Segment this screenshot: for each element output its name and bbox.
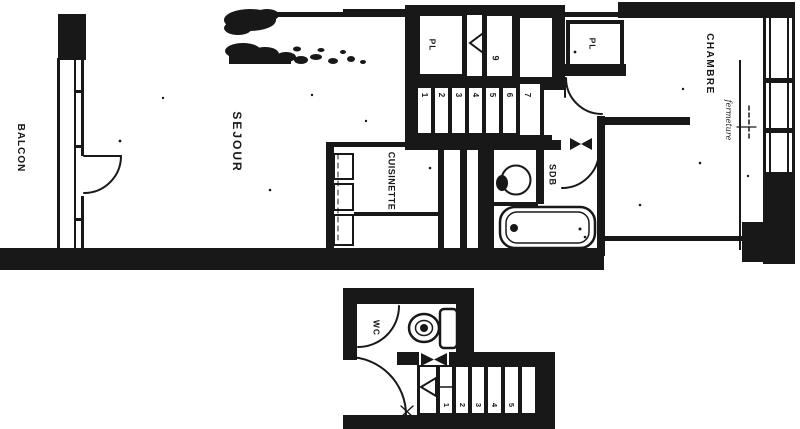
entry-door-arc [348,357,413,417]
stair-number-9: 9 [491,55,500,60]
room-label-cuisinette: CUISINETTE [387,152,396,211]
plan-symbols-layer [0,0,800,429]
room-label-chambre: CHAMBRE [704,33,714,95]
stair-number-6: 6 [505,93,513,97]
stair-number-5: 5 [488,93,496,97]
lower-stair-number-3: 3 [474,403,482,407]
lower-stair-number-1: 1 [442,403,450,407]
stair-number-2: 2 [437,93,445,97]
room-label-balcon: BALCON [15,124,25,173]
room-label-sdb: SDB [548,164,557,186]
annotation-fermeture: fermeture [724,100,732,141]
washbasin-icon [497,166,531,195]
floor-plan-scan: BALCON SEJOUR CUISINETTE SDB CHAMBRE fer… [0,0,800,429]
lower-stair-number-5: 5 [507,403,515,407]
chambre-door-arc [565,78,602,114]
closet-label-stair: PL [428,39,437,52]
closet-label-chambre: PL [588,38,597,51]
threshold-bowtie-icon [570,138,592,150]
lower-stair-number-2: 2 [458,403,466,407]
fermeture-dash-line [737,106,756,140]
lower-stair-arrow-icon [421,378,452,396]
sdb-door-arc [562,151,599,188]
stair-arrow-up-icon [470,31,486,55]
room-label-wc: WC [372,320,381,336]
scan-noise [119,51,750,239]
stair-number-1: 1 [420,93,428,97]
stair-number-7: 7 [523,93,531,97]
stair-number-4: 4 [471,93,479,97]
lower-stair-number-4: 4 [490,403,498,407]
room-label-sejour: SEJOUR [231,111,243,172]
bathtub-icon [500,207,595,248]
balcony-door-arc [84,156,121,193]
illegible-smudge [224,9,366,64]
stair-number-3: 3 [454,93,462,97]
lower-threshold-bowtie-icon [421,353,447,366]
toilet-icon [409,309,457,348]
